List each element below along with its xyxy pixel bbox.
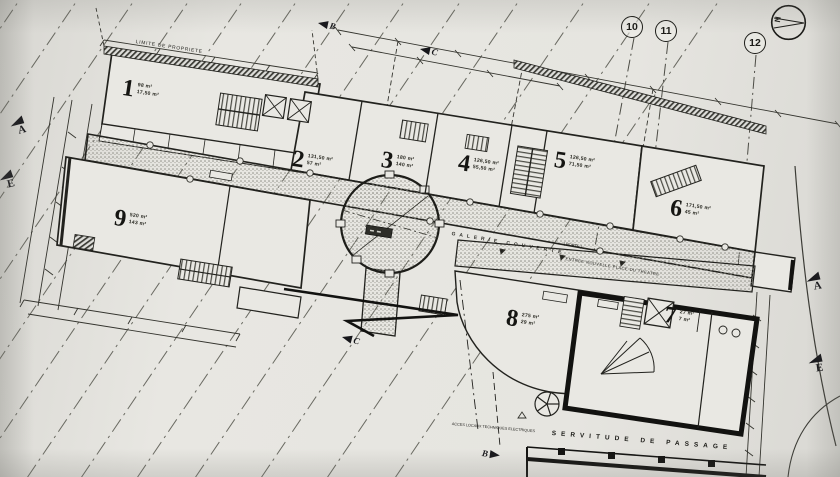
room-number: 8 xyxy=(504,306,519,332)
north-arrow-icon xyxy=(770,4,807,41)
room-number: 2 xyxy=(290,147,305,173)
ref-circle-10: 10 xyxy=(621,16,643,38)
room-area-secondary: 143 m² xyxy=(128,219,146,228)
room-number: 5 xyxy=(552,148,567,174)
arcade-strip xyxy=(527,447,766,477)
ref-circle-11: 11 xyxy=(655,20,677,42)
room-label-3: 3 180 m²140 m² xyxy=(379,148,415,177)
ref-circle-12: 12 xyxy=(744,32,766,54)
room-label-7: 7 27 m²7 m² xyxy=(662,303,695,331)
section-mark-right-a: A xyxy=(808,271,825,293)
room-number: 9 xyxy=(112,206,127,232)
section-mark-right-e: E xyxy=(811,353,828,375)
flag-triangle-icon xyxy=(341,333,353,343)
room-number: 7 xyxy=(662,303,677,329)
room-label-6: 6 171,50 m²45 m² xyxy=(668,196,712,226)
flag-triangle-icon xyxy=(317,19,328,29)
flag-triangle-icon xyxy=(419,45,430,55)
section-triangle-icon xyxy=(807,270,826,281)
road-edges xyxy=(788,166,840,477)
room-number: 4 xyxy=(456,151,471,177)
site-plan: 1 98 m²17,50 m² 2 131,50 m²57 m² 3 180 m… xyxy=(0,0,840,477)
room-label-8: 8 275 m²29 m² xyxy=(504,306,540,335)
spiral-stair-icon xyxy=(535,392,559,416)
room-area-secondary: 7 m² xyxy=(678,316,693,324)
north-indicator: N xyxy=(770,4,807,41)
flag-triangle-icon xyxy=(489,450,500,459)
section-triangle-icon xyxy=(809,353,828,364)
elevator-icon xyxy=(262,95,286,119)
room-number: 3 xyxy=(379,148,394,174)
room-area-secondary: 140 m² xyxy=(395,161,413,170)
room-label-9: 9 520 m²143 m² xyxy=(112,206,148,235)
room-area-secondary: 29 m² xyxy=(520,319,538,328)
room-number: 1 xyxy=(120,76,135,102)
room-number: 6 xyxy=(668,196,683,222)
room-label-4: 4 126,50 m²55,50 m² xyxy=(456,151,500,181)
room-label-5: 5 126,50 m²71,50 m² xyxy=(552,148,596,178)
elevator-icon xyxy=(287,99,311,123)
plan-linework xyxy=(0,0,840,477)
room-label-1: 1 98 m²17,50 m² xyxy=(120,76,161,105)
room-label-2: 2 131,50 m²57 m² xyxy=(290,147,334,177)
